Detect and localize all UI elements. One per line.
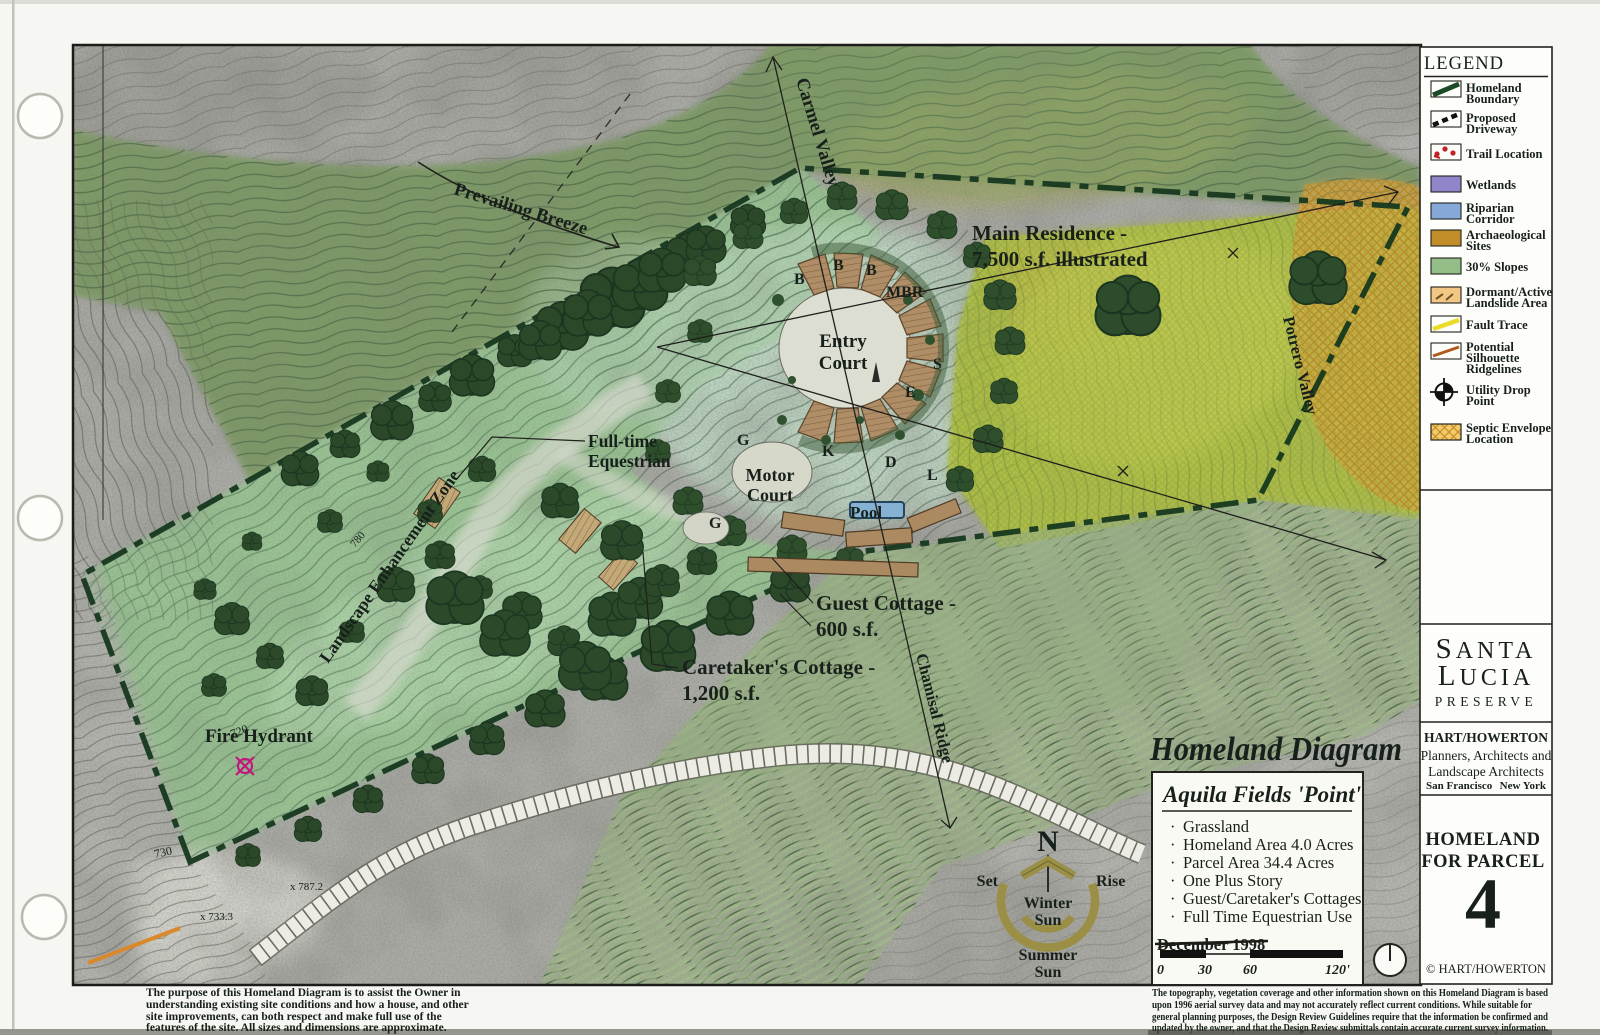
svg-text:30: 30 [1197,963,1212,978]
svg-text:G: G [737,432,750,449]
svg-text:upon 1996 aerial survey data a: upon 1996 aerial survey data and may not… [1152,999,1532,1011]
svg-text:Landslide Area: Landslide Area [1466,296,1548,310]
svg-text:understanding existing site co: understanding existing site conditions a… [146,999,469,1011]
svg-text:S: S [933,356,942,373]
svg-text:Homeland Diagram: Homeland Diagram [1149,731,1402,768]
svg-text:4: 4 [1465,864,1501,944]
svg-text:120': 120' [1325,963,1350,978]
svg-text:New York: New York [1500,780,1547,792]
svg-text:Motor: Motor [746,465,795,485]
svg-text:Full Time Equestrian Use: Full Time Equestrian Use [1183,907,1352,926]
svg-text:Homeland Area 4.0 Acres: Homeland Area 4.0 Acres [1183,835,1353,854]
svg-text:Entry: Entry [819,331,867,352]
svg-text:Trail Location: Trail Location [1466,147,1543,161]
svg-text:features of the site. All siz: features of the site. All sizes and dime… [146,1022,447,1034]
svg-text:B: B [794,271,805,288]
svg-text:Caretaker's Cottage -: Caretaker's Cottage - [682,655,875,679]
svg-text:Court: Court [819,353,868,374]
svg-text:Location: Location [1466,432,1513,446]
svg-text:60: 60 [1243,963,1257,978]
svg-text:·: · [1170,817,1176,836]
svg-text:San Francisco: San Francisco [1426,780,1493,792]
svg-text:Pool: Pool [850,503,882,522]
svg-text:Court: Court [747,485,793,505]
svg-text:Set: Set [977,873,999,890]
svg-text:30% Slopes: 30% Slopes [1466,260,1528,274]
svg-text:Sun: Sun [1035,912,1062,929]
svg-text:PRESERVE: PRESERVE [1435,694,1537,709]
svg-text:Driveway: Driveway [1466,122,1518,136]
svg-text:Parcel Area 34.4 Acres: Parcel Area 34.4 Acres [1183,853,1334,872]
svg-text:One Plus Story: One Plus Story [1183,871,1284,890]
svg-text:600 s.f.: 600 s.f. [816,617,878,641]
svg-text:Point: Point [1466,394,1495,408]
svg-text:G: G [709,515,722,532]
svg-text:·: · [1170,907,1176,926]
svg-text:Rise: Rise [1096,873,1125,890]
svg-text:·: · [1170,835,1176,854]
svg-text:·: · [1170,889,1176,908]
svg-text:x 733.3: x 733.3 [200,911,234,923]
svg-text:Summer: Summer [1019,947,1078,964]
svg-text:MBR: MBR [886,284,924,301]
svg-text:Fire Hydrant: Fire Hydrant [205,726,314,747]
svg-text:Corridor: Corridor [1466,212,1515,226]
svg-text:Fault Trace: Fault Trace [1466,318,1528,332]
svg-text:Planners, Architects and: Planners, Architects and [1421,748,1552,763]
svg-text:Landscape Architects: Landscape Architects [1428,764,1544,779]
svg-text:1,200 s.f.: 1,200 s.f. [682,681,760,705]
svg-text:Ridgelines: Ridgelines [1466,362,1522,376]
svg-text:7,500 s.f. illustrated: 7,500 s.f. illustrated [972,247,1148,271]
svg-text:LUCIA: LUCIA [1438,660,1534,692]
svg-text:E: E [905,384,916,401]
svg-text:© HART/HOWERTON: © HART/HOWERTON [1426,962,1546,976]
svg-text:Sun: Sun [1035,964,1062,981]
svg-text:HOMELAND: HOMELAND [1426,830,1541,850]
svg-text:Winter: Winter [1024,895,1073,912]
svg-text:Grassland: Grassland [1183,817,1250,836]
svg-text:K: K [822,443,835,460]
svg-text:·: · [1170,871,1176,890]
svg-text:Full-time: Full-time [588,431,657,451]
svg-text:Aquila Fields 'Point': Aquila Fields 'Point' [1161,782,1361,807]
svg-text:Wetlands: Wetlands [1466,178,1516,192]
svg-text:Boundary: Boundary [1466,92,1520,106]
svg-text:N: N [1037,825,1059,858]
svg-text:B: B [866,262,877,279]
svg-text:D: D [885,454,897,471]
svg-text:·: · [1170,853,1176,872]
svg-text:0: 0 [1157,963,1164,978]
svg-text:x 787.2: x 787.2 [290,881,323,893]
svg-text:Guest/Caretaker's Cottages: Guest/Caretaker's Cottages [1183,889,1361,908]
svg-text:LEGEND: LEGEND [1424,54,1504,74]
svg-text:L: L [927,467,938,484]
svg-text:Sites: Sites [1466,239,1491,253]
svg-text:HART/HOWERTON: HART/HOWERTON [1424,730,1548,745]
svg-text:The topography, vegetation cov: The topography, vegetation coverage and … [1152,987,1548,999]
svg-text:The purpose of this Homeland D: The purpose of this Homeland Diagram is … [146,987,461,999]
svg-text:Equestrian: Equestrian [588,451,671,471]
svg-text:Main Residence -: Main Residence - [972,221,1127,245]
svg-text:B: B [833,257,844,274]
svg-text:Guest Cottage -: Guest Cottage - [816,591,956,615]
